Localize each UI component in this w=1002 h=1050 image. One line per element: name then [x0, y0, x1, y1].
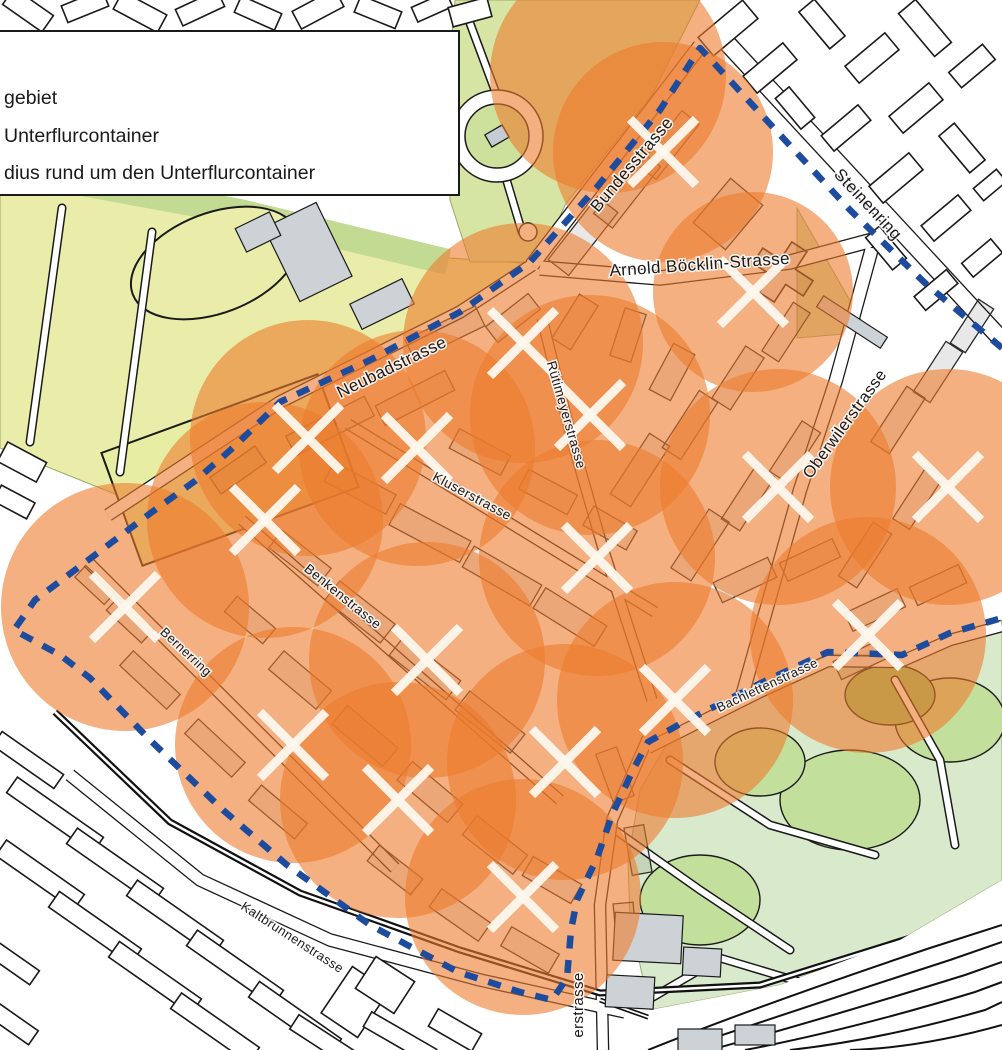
gray-area — [678, 1029, 722, 1050]
building-outside — [0, 485, 35, 519]
building-outside — [363, 1012, 436, 1050]
building-outside — [3, 0, 54, 32]
building-outside — [0, 732, 64, 789]
building-outside — [113, 0, 167, 33]
building-outside — [428, 1009, 481, 1050]
legend-box: gebiet Unterflurcontainer dius rund um d… — [0, 30, 460, 196]
building-outside — [921, 195, 971, 241]
street-label-erstrasse: erstrasse — [570, 972, 587, 1037]
building-outside — [61, 0, 109, 23]
building-outside — [973, 169, 1002, 201]
building-outside — [234, 0, 282, 30]
building-outside — [889, 83, 943, 133]
legend-item-container: Unterflurcontainer — [4, 125, 159, 148]
gray-area — [682, 947, 721, 977]
building-outside — [799, 0, 845, 49]
building-outside — [869, 153, 923, 203]
building-outside — [939, 123, 985, 173]
legend-item-area: gebiet — [4, 87, 57, 110]
building-outside — [0, 939, 39, 984]
building-outside — [292, 0, 344, 29]
building-outside — [354, 0, 402, 29]
building-outside — [411, 0, 452, 22]
building-outside — [845, 33, 899, 83]
building-outside — [0, 995, 38, 1044]
building-outside — [899, 0, 952, 57]
gray-area — [735, 1025, 775, 1045]
gray-area — [605, 975, 655, 1009]
building-outside — [175, 0, 224, 26]
legend-item-radius: dius rund um den Unterflurcontainer — [4, 162, 315, 185]
building-outside — [821, 105, 871, 151]
building-outside — [949, 44, 996, 88]
building-outside — [962, 239, 1002, 277]
building-outside — [171, 993, 260, 1050]
